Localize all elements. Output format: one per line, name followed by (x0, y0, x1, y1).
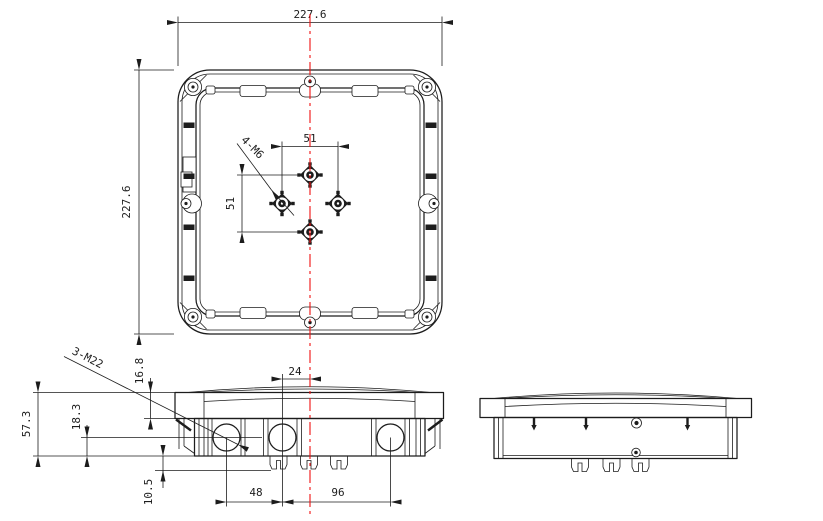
mounting-clips-side (572, 459, 650, 472)
dim-gland-center-height-label: 18.3 (70, 404, 83, 431)
dim-clip-height-label: 10.5 (142, 479, 155, 506)
side-view (480, 393, 752, 472)
dim-total-height-label: 57.3 (20, 411, 33, 438)
dim-overall-height-label: 227.6 (120, 185, 133, 218)
dim-gland-pitch-right-label: 96 (331, 486, 344, 499)
mid-screw-left (181, 194, 202, 213)
technical-drawing-canvas: 227.6 227.6 51 51 4-M6 (0, 0, 823, 521)
leader-boss-holes-label: 4-M6 (239, 134, 267, 162)
side-flange (480, 399, 752, 418)
front-view (175, 387, 444, 469)
leader-glands-label: 3-M22 (70, 345, 105, 372)
dim-lid-flange-height-label: 16.8 (133, 358, 146, 385)
dim-gland-to-center-label: 24 (288, 365, 302, 378)
dim-gland-pitch-left-label: 48 (249, 486, 262, 499)
dim-boss-spacing-v-label: 51 (224, 197, 237, 210)
lid-dome-outer (187, 387, 432, 393)
drawing-svg: 227.6 227.6 51 51 4-M6 (0, 0, 823, 521)
mounting-boss-right (325, 191, 350, 216)
side-dome-outer (493, 393, 738, 399)
side-body (494, 418, 737, 459)
hanging-pins (531, 418, 690, 431)
cover-screw-upper (632, 418, 642, 428)
mid-screw-right (419, 194, 440, 213)
dim-overall-height: 227.6 (120, 70, 174, 334)
cover-screw-lower (632, 448, 641, 457)
dim-gland-pitch: 48 96 (227, 438, 391, 507)
mounting-clips-front (270, 456, 348, 469)
flange (175, 393, 444, 419)
